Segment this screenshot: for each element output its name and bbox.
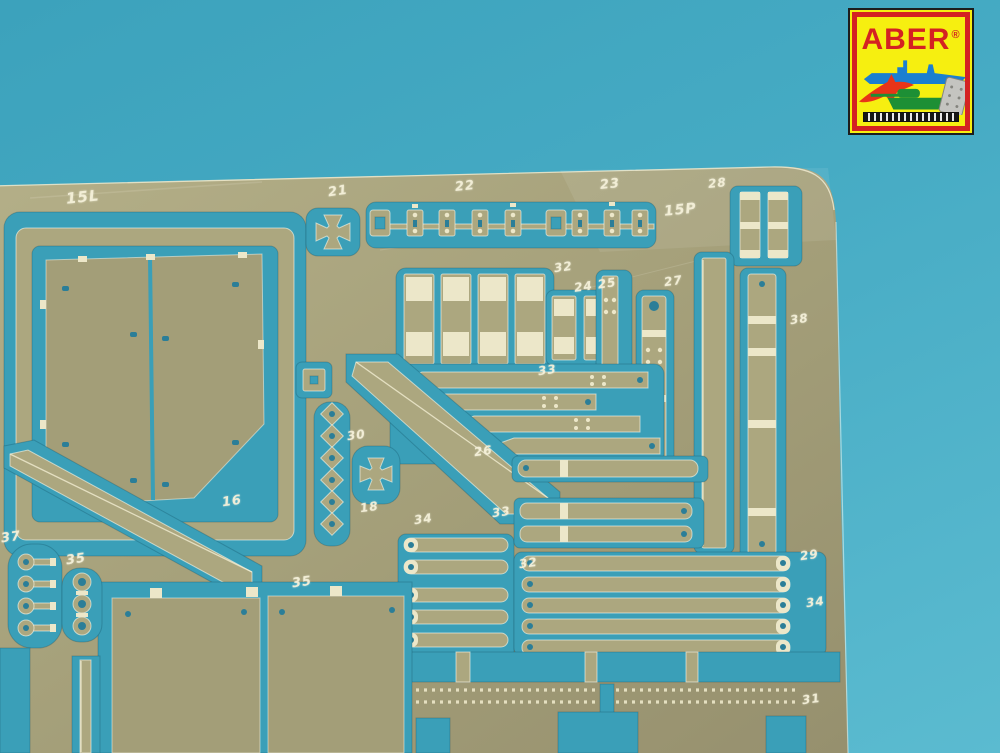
ring-chain-parts (62, 568, 102, 642)
logo-art (858, 51, 970, 115)
square-ring-part (296, 362, 332, 398)
registered-trademark-icon: ® (951, 29, 960, 41)
long-bar-pair-middle (512, 456, 708, 548)
clip-strip-channel (366, 202, 656, 248)
short-bar-stack-left (398, 534, 514, 660)
large-panels-bottom-left (98, 582, 412, 753)
cross-part-top (306, 208, 360, 256)
cross-part-18 (352, 446, 400, 504)
long-bar-stack-right (514, 552, 826, 656)
part-28-bars (730, 186, 802, 266)
aber-logo-inner: ABER® (852, 12, 970, 131)
key-shaped-parts (8, 544, 62, 648)
logo-filmstrip (863, 112, 959, 122)
bracket-parts-large (396, 268, 554, 372)
part-15L-hatch-assembly (4, 212, 306, 556)
diamond-link-chain (314, 402, 350, 546)
aber-logo: ABER® (848, 8, 974, 135)
